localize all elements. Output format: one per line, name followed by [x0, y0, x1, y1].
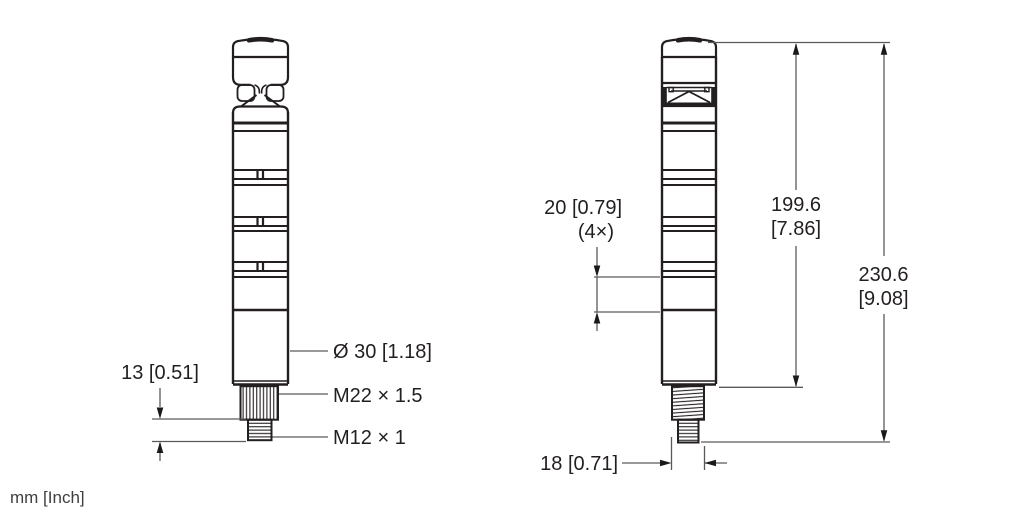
cap-dome — [249, 39, 272, 40]
thread-width-dim: 18 [0.71] — [540, 453, 618, 475]
left-dimension-arrows — [157, 408, 164, 454]
right-dimension-lines — [594, 43, 890, 471]
right-thread-m12 — [678, 420, 699, 443]
right-thread-m22 — [672, 386, 704, 420]
thread-m22-label: M22 × 1.5 — [333, 385, 423, 407]
left-thread-m22 — [241, 386, 279, 420]
diameter-label: Ø 30 [1.18] — [333, 341, 432, 363]
stud-length-dim: 13 [0.51] — [121, 362, 199, 384]
thread-m12-label: M12 × 1 — [333, 427, 406, 449]
technical-dimension-drawing: 13 [0.51] Ø 30 [1.18] M22 × 1.5 M12 × 1 — [0, 0, 1022, 511]
segment-height-dim: 20 [0.79] — [544, 197, 622, 219]
units-label: mm [Inch] — [10, 488, 85, 507]
total-height-dim-inch: [9.08] — [858, 288, 908, 310]
segment-count-dim: (4×) — [578, 221, 614, 243]
left-tower-outline — [233, 39, 288, 385]
drawing-svg: 13 [0.51] Ø 30 [1.18] M22 × 1.5 M12 × 1 — [0, 0, 1022, 511]
left-thread-m12 — [248, 420, 272, 441]
right-clamp-detail — [662, 83, 716, 107]
right-dimension-arrows — [594, 43, 888, 466]
cap-dome — [678, 39, 700, 40]
body-height-dim-inch: [7.86] — [771, 218, 821, 240]
body-height-dim-mm: 199.6 — [771, 194, 821, 216]
total-height-dim-mm: 230.6 — [858, 264, 908, 286]
